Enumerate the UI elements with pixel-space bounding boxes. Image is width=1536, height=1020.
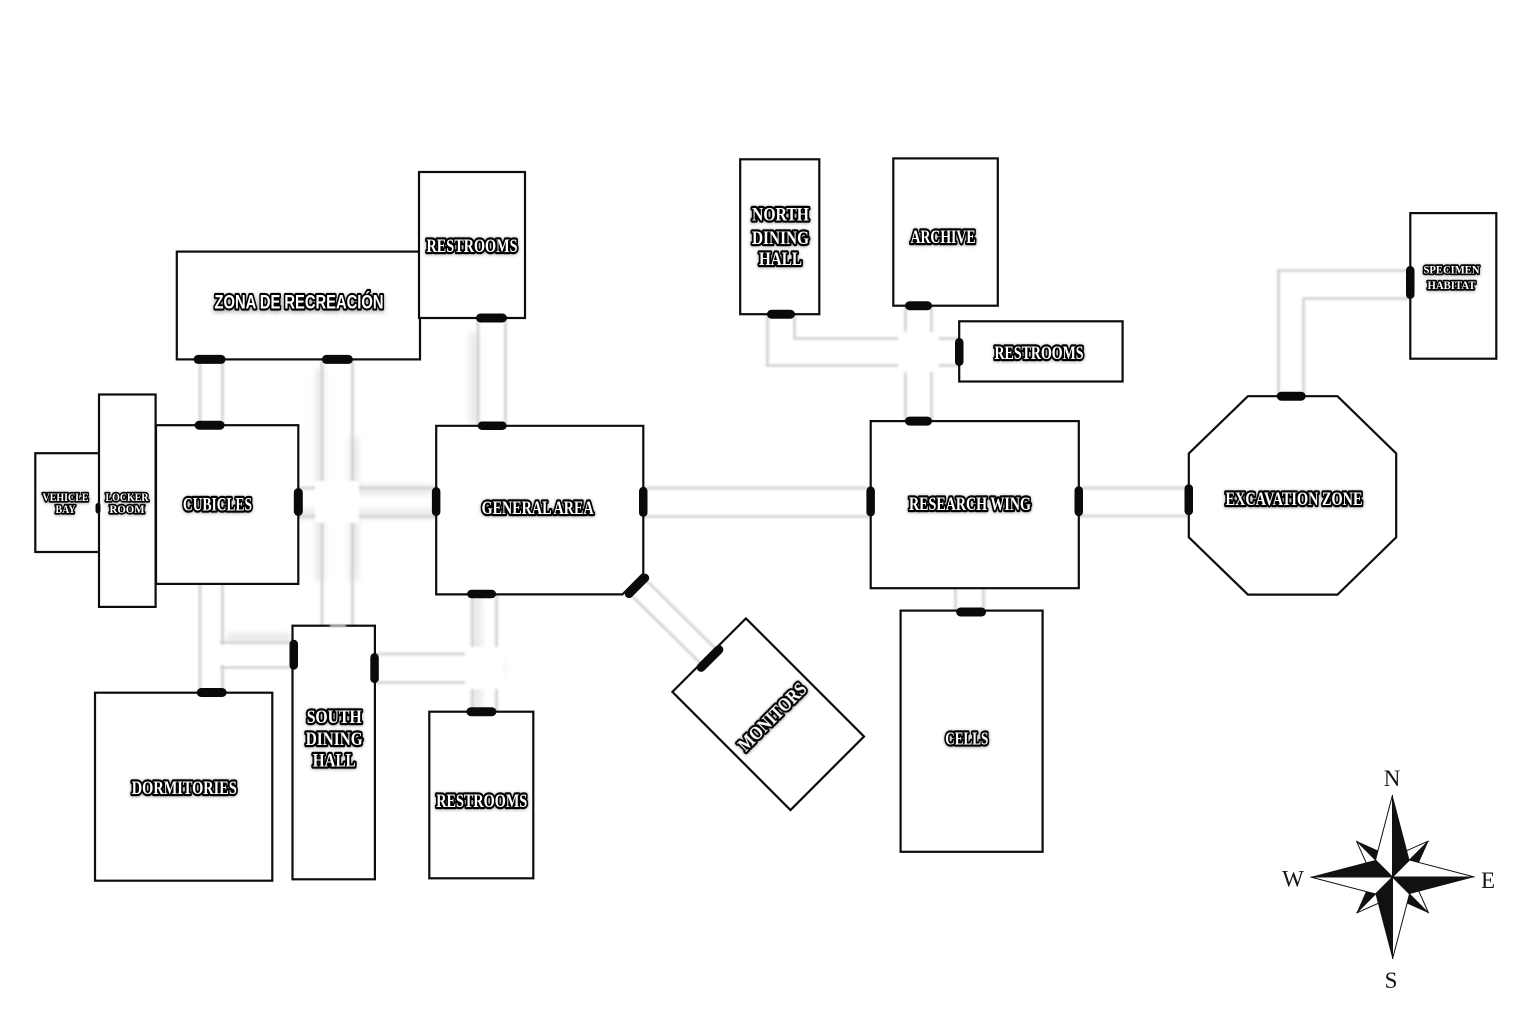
- svg-text:HALL: HALL: [759, 249, 802, 270]
- svg-text:SOUTH: SOUTH: [307, 707, 362, 728]
- svg-text:HALL: HALL: [313, 751, 356, 772]
- svg-text:NORTH: NORTH: [752, 204, 809, 225]
- svg-text:E: E: [1481, 868, 1495, 893]
- svg-text:DINING: DINING: [752, 228, 809, 249]
- svg-text:N: N: [1384, 766, 1401, 791]
- svg-text:EXCAVATION ZONE: EXCAVATION ZONE: [1226, 489, 1363, 510]
- svg-text:RESTROOMS: RESTROOMS: [436, 791, 527, 812]
- svg-text:ARCHIVE: ARCHIVE: [911, 227, 976, 248]
- svg-text:CUBICLES: CUBICLES: [183, 495, 252, 516]
- svg-text:SPECIMEN: SPECIMEN: [1424, 263, 1480, 277]
- svg-text:W: W: [1282, 867, 1304, 892]
- svg-text:RESTROOMS: RESTROOMS: [995, 343, 1084, 364]
- svg-text:S: S: [1385, 968, 1398, 993]
- svg-text:ZONA DE RECREACIÓN: ZONA DE RECREACIÓN: [215, 290, 384, 314]
- svg-text:RESTROOMS: RESTROOMS: [427, 236, 518, 257]
- svg-text:GENERAL AREA: GENERAL AREA: [482, 498, 594, 519]
- svg-text:RESEARCH WING: RESEARCH WING: [909, 494, 1031, 515]
- svg-text:HABITAT: HABITAT: [1428, 278, 1476, 292]
- svg-text:DORMITORIES: DORMITORIES: [132, 778, 237, 799]
- svg-text:CELLS: CELLS: [945, 729, 988, 749]
- svg-text:DINING: DINING: [306, 729, 363, 750]
- svg-text:ROOM: ROOM: [110, 502, 145, 516]
- svg-text:BAY: BAY: [56, 502, 76, 516]
